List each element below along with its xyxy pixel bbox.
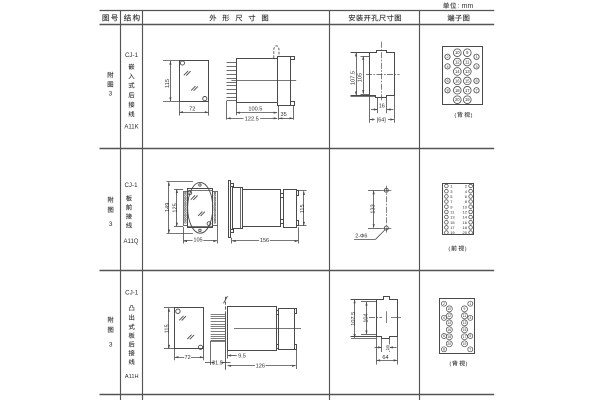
- svg-text:6: 6: [446, 79, 448, 83]
- svg-text:3: 3: [109, 341, 113, 348]
- svg-text:2: 2: [443, 302, 445, 306]
- svg-text:133: 133: [370, 204, 376, 213]
- svg-text:3: 3: [109, 221, 113, 228]
- svg-text:115: 115: [165, 324, 171, 333]
- svg-text:104: 104: [363, 313, 369, 322]
- svg-text:): ): [471, 113, 473, 119]
- svg-text:16: 16: [379, 104, 385, 110]
- svg-text:8: 8: [443, 348, 445, 352]
- svg-text:16: 16: [455, 78, 460, 83]
- svg-text:mm: mm: [462, 3, 474, 10]
- svg-text:14: 14: [455, 69, 460, 74]
- svg-text:149: 149: [165, 203, 171, 212]
- svg-text:A11Q: A11Q: [124, 239, 139, 245]
- svg-text:105: 105: [357, 73, 363, 82]
- svg-text:10: 10: [455, 50, 460, 55]
- svg-text:12: 12: [455, 60, 460, 65]
- svg-text::: :: [458, 3, 460, 10]
- svg-text:72: 72: [184, 355, 190, 361]
- svg-text:10: 10: [447, 307, 451, 311]
- svg-text:2-Φ6: 2-Φ6: [355, 233, 367, 239]
- svg-text:3: 3: [469, 316, 471, 320]
- svg-text:19: 19: [465, 97, 470, 102]
- svg-text:5: 5: [469, 334, 471, 338]
- svg-text:107.5: 107.5: [351, 312, 357, 326]
- svg-text:115: 115: [165, 79, 171, 88]
- svg-text:9: 9: [464, 307, 466, 311]
- svg-text:72: 72: [189, 107, 195, 113]
- svg-text:A11K: A11K: [124, 125, 138, 131]
- svg-text:105: 105: [193, 237, 202, 243]
- svg-text:35: 35: [280, 112, 286, 118]
- svg-text:4: 4: [443, 316, 445, 320]
- svg-text:14: 14: [447, 321, 451, 325]
- svg-text:13: 13: [463, 321, 467, 325]
- svg-text:18: 18: [447, 335, 451, 339]
- svg-text:8: 8: [446, 89, 448, 93]
- svg-text:(: (: [454, 113, 456, 119]
- svg-text:3: 3: [109, 91, 113, 98]
- svg-text:20: 20: [463, 230, 468, 235]
- svg-text:[64]: [64]: [377, 117, 386, 123]
- svg-text:19: 19: [463, 342, 467, 346]
- svg-text:107.5: 107.5: [350, 71, 356, 85]
- svg-text:13: 13: [465, 69, 470, 74]
- svg-text:1: 1: [469, 302, 471, 306]
- svg-text:18: 18: [455, 88, 460, 93]
- svg-text:9.5: 9.5: [238, 353, 246, 359]
- svg-text:122.5: 122.5: [245, 116, 259, 122]
- svg-text:16: 16: [385, 345, 391, 351]
- svg-text:1: 1: [475, 55, 477, 59]
- svg-text:6: 6: [443, 334, 445, 338]
- svg-text:156: 156: [260, 238, 269, 244]
- svg-text:3: 3: [475, 65, 477, 69]
- svg-text:17: 17: [465, 88, 470, 93]
- svg-text:CJ-1: CJ-1: [125, 289, 139, 296]
- svg-text:5: 5: [475, 79, 477, 83]
- svg-text:4: 4: [446, 65, 448, 69]
- svg-text:11: 11: [465, 60, 470, 65]
- svg-text:115: 115: [300, 204, 306, 213]
- svg-text:20: 20: [455, 97, 460, 102]
- svg-text:126: 126: [256, 364, 265, 370]
- svg-text:): ): [466, 362, 468, 368]
- svg-text:11: 11: [463, 314, 467, 318]
- svg-text:7: 7: [475, 89, 477, 93]
- svg-text:(: (: [448, 247, 450, 253]
- svg-text:): ): [465, 247, 467, 253]
- svg-text:31.5: 31.5: [212, 361, 223, 367]
- svg-text:(: (: [449, 362, 451, 368]
- svg-text:64: 64: [382, 355, 388, 361]
- svg-text:125: 125: [173, 203, 179, 212]
- svg-text:20: 20: [447, 342, 451, 346]
- svg-text:16: 16: [447, 328, 451, 332]
- svg-text:100.5: 100.5: [248, 107, 262, 113]
- svg-text:2: 2: [446, 55, 448, 59]
- svg-text:CJ-1: CJ-1: [124, 182, 138, 189]
- svg-text:17: 17: [463, 335, 467, 339]
- svg-text:15: 15: [463, 328, 467, 332]
- svg-text:CJ-1: CJ-1: [125, 52, 139, 59]
- svg-text:12: 12: [447, 314, 451, 318]
- svg-text:15: 15: [465, 78, 470, 83]
- svg-text:7: 7: [469, 348, 471, 352]
- svg-text:A11H: A11H: [125, 374, 139, 380]
- svg-text:19: 19: [450, 230, 455, 235]
